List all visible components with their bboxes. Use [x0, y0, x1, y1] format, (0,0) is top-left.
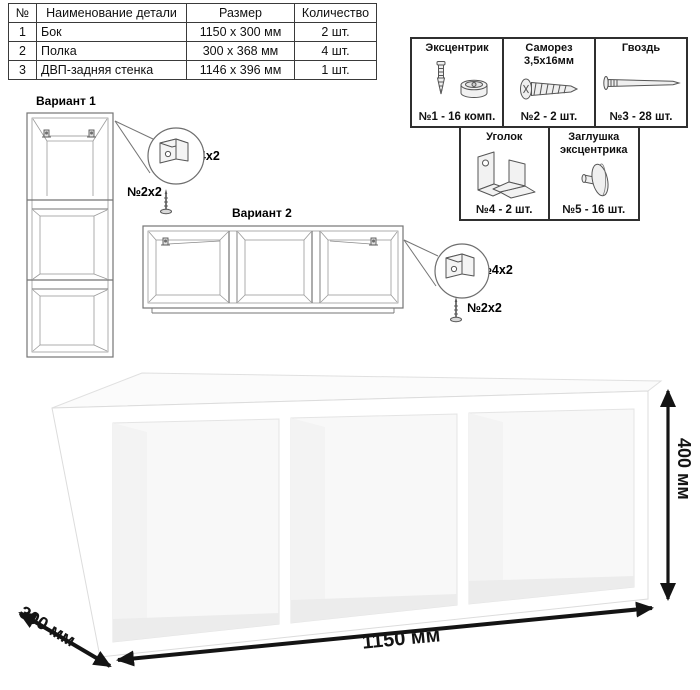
nail-icon — [596, 55, 686, 111]
variant2-drawing — [143, 226, 403, 313]
row-qty: 4 шт. — [295, 42, 377, 61]
header-name: Наименование детали — [37, 4, 187, 23]
assembly-instruction-sheet: № Наименование детали Размер Количество … — [0, 0, 700, 690]
cam-cap-icon — [550, 156, 638, 204]
row-name: Бок — [37, 23, 187, 42]
shelf-3d-drawing — [0, 360, 700, 690]
variants-line-art — [0, 85, 560, 370]
header-num: № — [9, 4, 37, 23]
row-name: ДВП-задняя стенка — [37, 61, 187, 80]
row-qty: 1 шт. — [295, 61, 377, 80]
hardware-name: Гвоздь — [622, 39, 660, 55]
hardware-name: Заглушка эксцентрика — [554, 128, 634, 156]
row-size: 1146 x 396 мм — [187, 61, 295, 80]
header-size: Размер — [187, 4, 295, 23]
row-qty: 2 шт. — [295, 23, 377, 42]
parts-table: № Наименование детали Размер Количество … — [8, 3, 377, 80]
table-row: 1 Бок 1150 x 300 мм 2 шт. — [9, 23, 377, 42]
shelf-opening-3 — [469, 409, 634, 604]
row-num: 1 — [9, 23, 37, 42]
row-size: 1150 x 300 мм — [187, 23, 295, 42]
hardware-name: Эксцентрик — [425, 39, 488, 55]
hardware-cell-cap: Заглушка эксцентрика №5 - 16 шт. — [548, 126, 640, 221]
variant1-callout — [115, 121, 204, 214]
shelf-opening-2 — [291, 414, 457, 623]
hardware-count: №5 - 16 шт. — [562, 204, 625, 219]
table-row: 3 ДВП-задняя стенка 1146 x 396 мм 1 шт. — [9, 61, 377, 80]
variant2-callout — [404, 240, 489, 322]
row-num: 3 — [9, 61, 37, 80]
dimension-height-label: 400 мм — [673, 438, 694, 500]
row-size: 300 x 368 мм — [187, 42, 295, 61]
row-name: Полка — [37, 42, 187, 61]
parts-table-header-row: № Наименование детали Размер Количество — [9, 4, 377, 23]
row-num: 2 — [9, 42, 37, 61]
hardware-cell-nail: Гвоздь №3 - 28 шт. — [594, 37, 688, 128]
shelf-opening-1 — [113, 419, 279, 642]
variant1-drawing — [27, 113, 113, 357]
header-qty: Количество — [295, 4, 377, 23]
hardware-count: №3 - 28 шт. — [610, 111, 673, 126]
hardware-name: Саморез 3,5х16мм — [518, 39, 580, 67]
table-row: 2 Полка 300 x 368 мм 4 шт. — [9, 42, 377, 61]
